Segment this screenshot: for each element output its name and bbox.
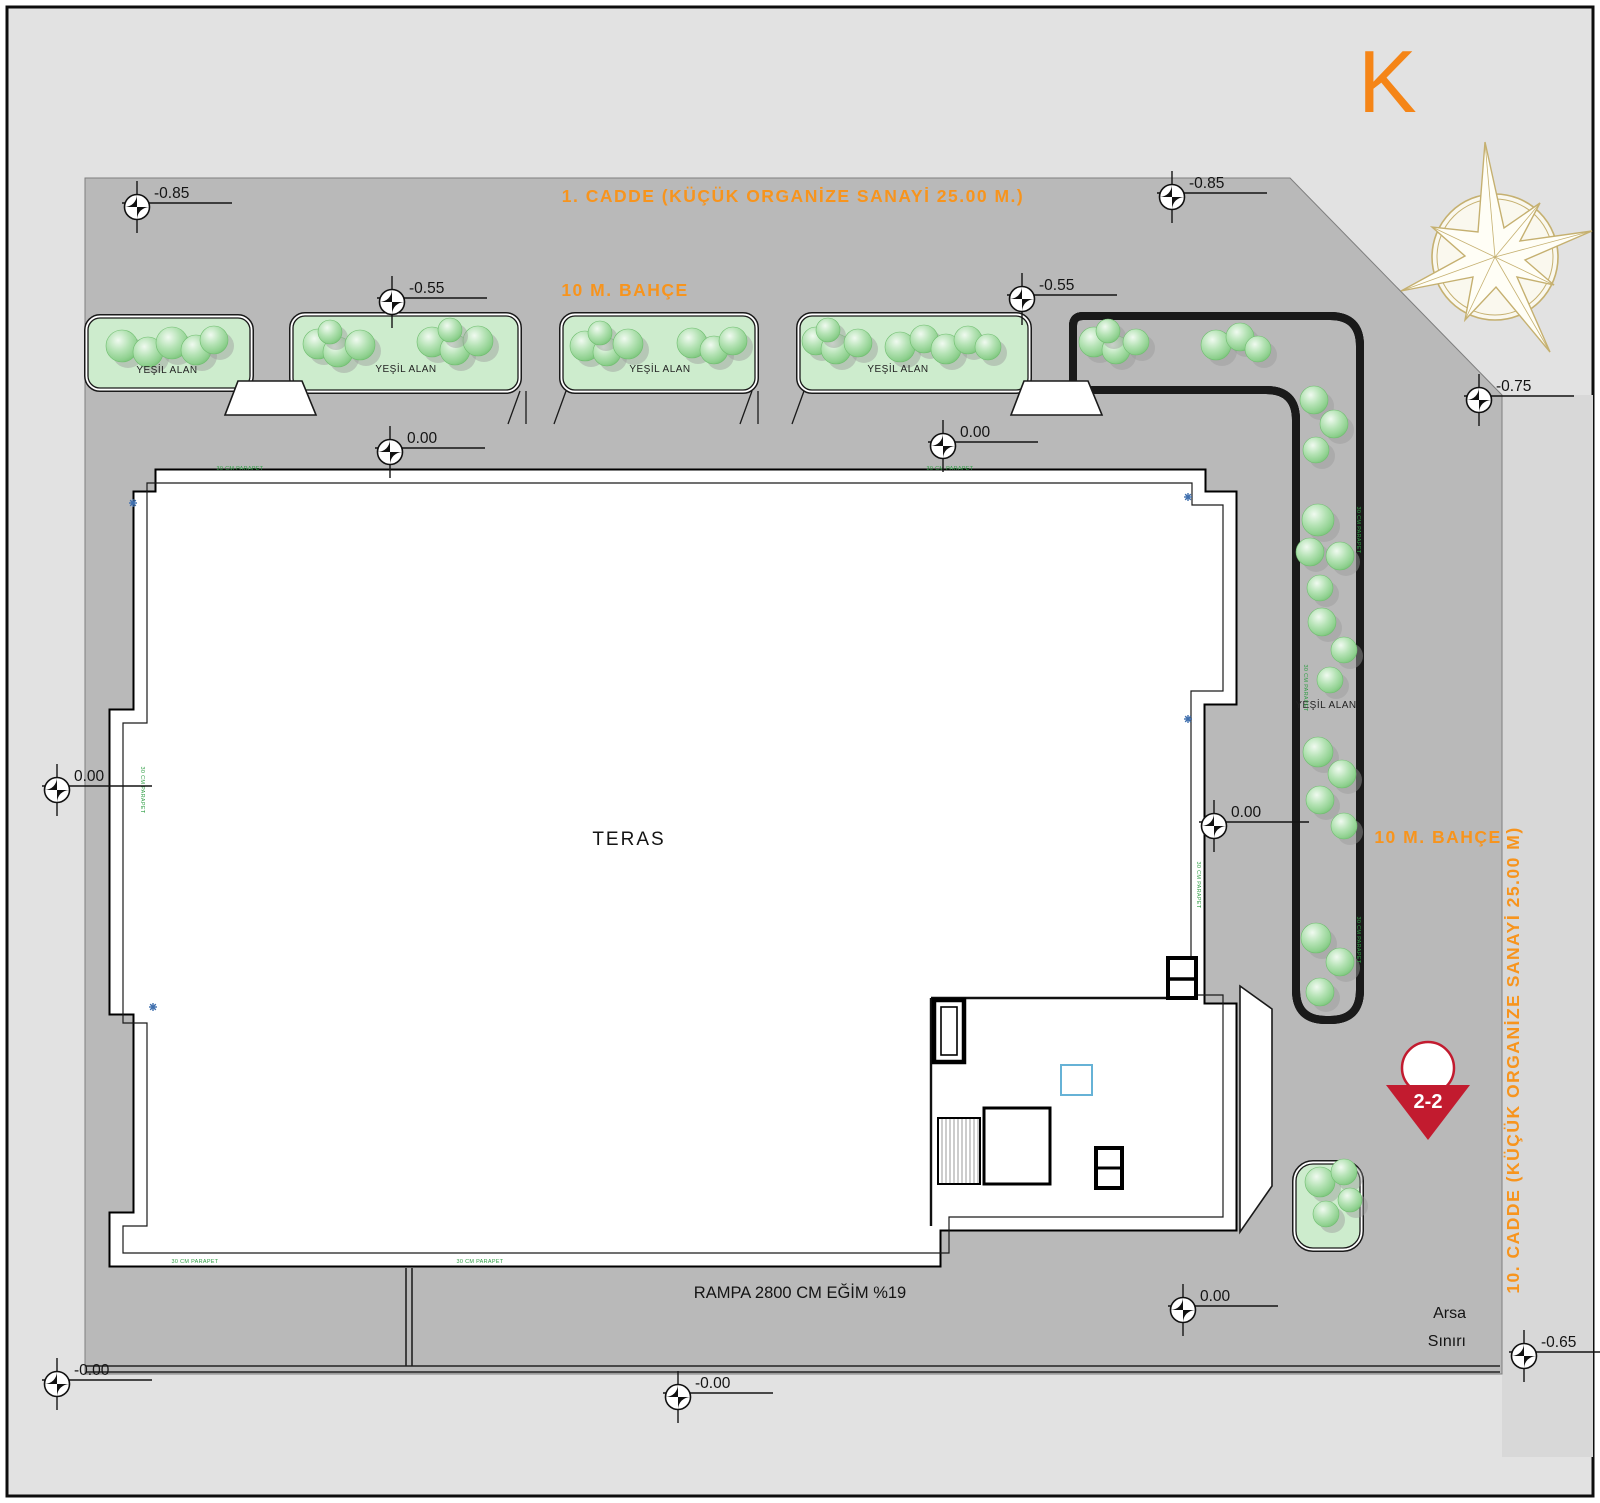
roof-drain-icon bbox=[149, 1003, 157, 1011]
elevation-value: 0.00 bbox=[1231, 804, 1262, 821]
louver-grille bbox=[938, 1118, 980, 1184]
green-area-label: YEŞİL ALAN bbox=[867, 362, 928, 375]
tree-icon bbox=[1326, 948, 1354, 976]
garden-label-top: 10 M. BAHÇE bbox=[561, 280, 688, 300]
tree-icon bbox=[106, 330, 138, 362]
site-plan-svg: YEŞİL ALANYEŞİL ALANYEŞİL ALANYEŞİL ALAN… bbox=[0, 0, 1600, 1503]
tree-icon bbox=[1338, 1188, 1362, 1212]
parapet-note: 30 CM PARAPET bbox=[217, 466, 264, 472]
skylight-box bbox=[934, 1000, 964, 1062]
elevation-value: 0.00 bbox=[407, 430, 438, 447]
street-label-top: 1. CADDE (KÜÇÜK ORGANİZE SANAYİ 25.00 M.… bbox=[562, 186, 1024, 206]
tree-icon bbox=[1331, 1159, 1357, 1185]
tree-icon bbox=[975, 334, 1001, 360]
tree-icon bbox=[1296, 538, 1324, 566]
tree-icon bbox=[1303, 437, 1329, 463]
garden-label-right: 10 M. BAHÇE bbox=[1374, 827, 1501, 847]
elevation-value: -0.85 bbox=[154, 185, 189, 202]
arsa-siniri-label-line1: Arsa bbox=[1433, 1305, 1466, 1322]
tree-icon bbox=[844, 329, 872, 357]
north-letter: K bbox=[1358, 32, 1417, 131]
tree-icon bbox=[200, 326, 228, 354]
roof-drain-dot bbox=[1186, 495, 1189, 498]
roof-drain-icon bbox=[129, 499, 137, 507]
tree-icon bbox=[816, 318, 840, 342]
section-marker-label: 2-2 bbox=[1414, 1091, 1443, 1113]
roof-drain-icon bbox=[1184, 493, 1192, 501]
parapet-note: 30 CM PARAPET bbox=[457, 1259, 504, 1265]
elevation-value: -0.65 bbox=[1541, 1334, 1576, 1351]
elevation-value: 0.00 bbox=[960, 424, 991, 441]
tree-icon bbox=[318, 320, 342, 344]
tree-icon bbox=[1303, 737, 1333, 767]
roof-drain-icon bbox=[1184, 715, 1192, 723]
tree-icon bbox=[1326, 542, 1354, 570]
elevation-value: 0.00 bbox=[1200, 1288, 1231, 1305]
tree-icon bbox=[1123, 329, 1149, 355]
entrance-trapezoid-east bbox=[1011, 381, 1102, 415]
parapet-note: 30 CM PARAPET bbox=[1195, 862, 1201, 909]
arsa-siniri-label-line2: Sınırı bbox=[1428, 1333, 1466, 1350]
roof-drain-dot bbox=[131, 501, 134, 504]
green-area-label: YEŞİL ALAN bbox=[629, 362, 690, 375]
roof-drain-dot bbox=[151, 1005, 154, 1008]
tree-icon bbox=[588, 321, 612, 345]
teras-label: TERAS bbox=[592, 829, 665, 850]
elevation-value: -0.75 bbox=[1496, 378, 1531, 395]
elevation-value: -0.55 bbox=[1039, 277, 1074, 294]
elevation-value: -0.00 bbox=[695, 1375, 731, 1392]
tree-icon bbox=[1306, 786, 1334, 814]
roof-drain-dot bbox=[1186, 717, 1189, 720]
tree-icon bbox=[1313, 1201, 1339, 1227]
entrance-trapezoid-west bbox=[225, 381, 316, 415]
tree-icon bbox=[1320, 410, 1348, 438]
tree-icon bbox=[1308, 608, 1336, 636]
tree-icon bbox=[1331, 813, 1357, 839]
tree-icon bbox=[1096, 319, 1120, 343]
site-plan-page: YEŞİL ALANYEŞİL ALANYEŞİL ALANYEŞİL ALAN… bbox=[0, 0, 1600, 1503]
parapet-note: 30 CM PARAPET bbox=[1355, 507, 1361, 554]
tree-icon bbox=[613, 329, 643, 359]
tree-icon bbox=[1245, 336, 1271, 362]
elevation-value: -0.00 bbox=[74, 1362, 110, 1379]
elevation-value: -0.55 bbox=[409, 280, 444, 297]
tree-icon bbox=[1331, 637, 1357, 663]
tree-icon bbox=[438, 318, 462, 342]
tree-icon bbox=[1302, 504, 1334, 536]
parapet-note: 30 CM PARAPET bbox=[139, 767, 145, 814]
tree-icon bbox=[1305, 1167, 1335, 1197]
green-area-label: YEŞİL ALAN bbox=[136, 363, 197, 376]
tree-icon bbox=[1301, 923, 1331, 953]
parapet-note: 30 CM PARAPET bbox=[1355, 917, 1361, 964]
equipment-pad bbox=[984, 1108, 1050, 1184]
tree-icon bbox=[1306, 978, 1334, 1006]
parapet-note: 30 CM PARAPET bbox=[1302, 665, 1308, 712]
tree-icon bbox=[345, 330, 375, 360]
building bbox=[112, 472, 1234, 1264]
tree-icon bbox=[1307, 575, 1333, 601]
parapet-note: 30 CM PARAPET bbox=[172, 1259, 219, 1265]
tree-icon bbox=[1328, 760, 1356, 788]
green-area-label: YEŞİL ALAN bbox=[375, 362, 436, 375]
parapet-note: 30 CM PARAPET bbox=[927, 466, 974, 472]
rampa-label: RAMPA 2800 CM EĞİM %19 bbox=[694, 1283, 906, 1302]
tree-icon bbox=[1317, 667, 1343, 693]
elevation-value: -0.85 bbox=[1189, 175, 1224, 192]
elevation-value: 0.00 bbox=[74, 768, 105, 785]
tree-icon bbox=[463, 326, 493, 356]
tree-icon bbox=[719, 327, 747, 355]
tree-icon bbox=[1300, 386, 1328, 414]
street-label-right: 10. CADDE (KÜÇÜK ORGANİZE SANAYİ 25.00 M… bbox=[1503, 826, 1523, 1293]
